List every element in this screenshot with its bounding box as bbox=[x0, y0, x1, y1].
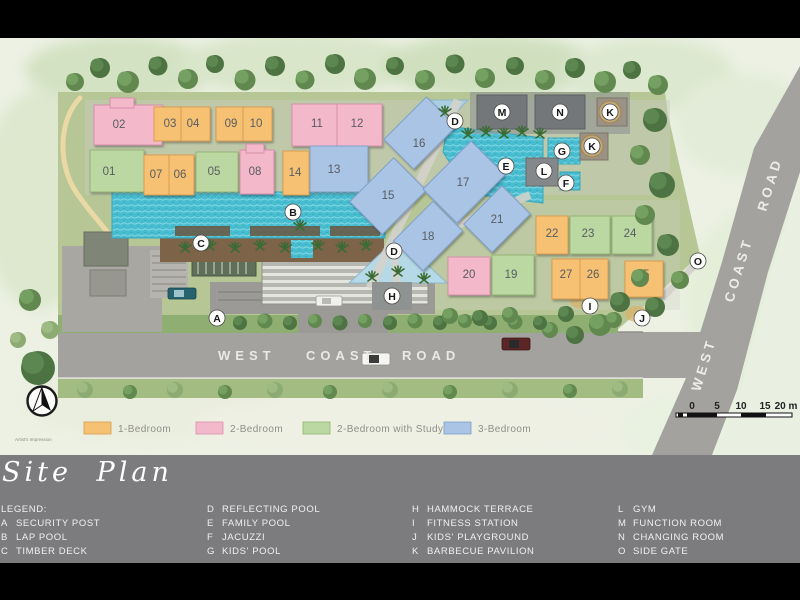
svg-text:2-Bedroom: 2-Bedroom bbox=[230, 424, 283, 435]
marker-gym: L bbox=[536, 163, 552, 179]
svg-text:11: 11 bbox=[311, 118, 323, 130]
svg-text:12: 12 bbox=[351, 118, 364, 130]
legend-item: KBARBECUE PAVILION bbox=[412, 545, 535, 559]
legend-item: ASECURITY POST bbox=[1, 517, 100, 531]
marker-function-room: M bbox=[494, 104, 510, 120]
svg-text:03: 03 bbox=[164, 118, 177, 130]
building-11-12 bbox=[292, 104, 382, 146]
svg-text:3-Bedroom: 3-Bedroom bbox=[478, 424, 531, 435]
legend-item: BLAP POOL bbox=[1, 531, 100, 545]
svg-text:16: 16 bbox=[413, 138, 426, 150]
svg-text:09: 09 bbox=[225, 118, 238, 130]
svg-text:23: 23 bbox=[582, 228, 595, 240]
marker-kids-playground: J bbox=[634, 310, 650, 326]
svg-text:D: D bbox=[390, 246, 398, 258]
site-plan-illustration: 01 02 03 04 05 06 07 08 09 10 11 12 13 1… bbox=[0, 38, 800, 455]
road-label-west: WEST bbox=[218, 348, 276, 363]
svg-text:10: 10 bbox=[735, 401, 747, 412]
svg-text:05: 05 bbox=[208, 166, 221, 178]
legend-item: EFAMILY POOL bbox=[207, 517, 320, 531]
marker-side-gate: O bbox=[690, 253, 706, 269]
svg-text:14: 14 bbox=[289, 167, 302, 179]
marker-reflecting-pool-lower: D bbox=[386, 243, 402, 259]
legend-column-1: LEGEND: ASECURITY POST BLAP POOL CTIMBER… bbox=[1, 503, 100, 559]
svg-text:D: D bbox=[451, 116, 459, 128]
legend-item: NCHANGING ROOM bbox=[618, 531, 724, 545]
legend-item: FJACUZZI bbox=[207, 531, 320, 545]
legend-item: OSIDE GATE bbox=[618, 545, 724, 559]
building-03-04 bbox=[154, 107, 210, 141]
svg-text:19: 19 bbox=[505, 269, 518, 281]
svg-text:F: F bbox=[563, 178, 570, 190]
info-panel: Site Plan LEGEND: ASECURITY POST BLAP PO… bbox=[0, 455, 800, 563]
svg-text:5: 5 bbox=[714, 401, 720, 412]
legend-swatch-2br-study bbox=[303, 422, 330, 434]
north-arrow-icon bbox=[28, 387, 57, 416]
marker-timber-deck: C bbox=[193, 235, 209, 251]
svg-text:A: A bbox=[213, 313, 221, 325]
svg-text:G: G bbox=[558, 146, 566, 158]
svg-text:08: 08 bbox=[249, 166, 262, 178]
marker-lap-pool: B bbox=[285, 204, 301, 220]
car bbox=[316, 296, 342, 306]
svg-text:10: 10 bbox=[250, 118, 263, 130]
svg-text:J: J bbox=[639, 313, 645, 325]
svg-text:K: K bbox=[606, 107, 614, 119]
svg-text:B: B bbox=[289, 207, 297, 219]
svg-text:L: L bbox=[541, 166, 548, 178]
legend-item: GKIDS' POOL bbox=[207, 545, 320, 559]
svg-text:26: 26 bbox=[587, 269, 600, 281]
svg-text:18: 18 bbox=[422, 231, 435, 243]
site-plan-map: 01 02 03 04 05 06 07 08 09 10 11 12 13 1… bbox=[0, 38, 800, 455]
page-title: Site Plan bbox=[2, 457, 173, 488]
marker-jacuzzi: F bbox=[558, 175, 574, 191]
letterbox-bottom bbox=[0, 563, 800, 600]
svg-text:2-Bedroom with Study: 2-Bedroom with Study bbox=[337, 424, 443, 435]
marker-family-pool: E bbox=[498, 158, 514, 174]
svg-text:0: 0 bbox=[689, 401, 695, 412]
svg-text:27: 27 bbox=[560, 269, 573, 281]
svg-text:21: 21 bbox=[491, 214, 504, 226]
building-01 bbox=[90, 150, 144, 192]
legend-item: MFUNCTION ROOM bbox=[618, 517, 724, 531]
svg-text:22: 22 bbox=[546, 228, 559, 240]
car bbox=[502, 338, 530, 350]
legend-item: LGYM bbox=[618, 503, 724, 517]
water-cascade bbox=[291, 240, 313, 258]
unit-type-legend: 1-Bedroom 2-Bedroom 2-Bedroom with Study… bbox=[84, 422, 531, 435]
legend-swatch-1br bbox=[84, 422, 111, 434]
screenshot-root: 01 02 03 04 05 06 07 08 09 10 11 12 13 1… bbox=[0, 0, 800, 600]
letterbox-top bbox=[0, 0, 800, 38]
roadside-planting-lower bbox=[58, 379, 643, 398]
svg-text:N: N bbox=[556, 107, 564, 119]
marker-security-post: A bbox=[209, 310, 225, 326]
legend-item: CTIMBER DECK bbox=[1, 545, 100, 559]
svg-text:20: 20 bbox=[463, 269, 476, 281]
marker-kids-pool: G bbox=[554, 143, 570, 159]
marker-reflecting-pool-upper: D bbox=[447, 113, 463, 129]
svg-text:K: K bbox=[588, 141, 596, 153]
marker-hammock-terrace: H bbox=[384, 288, 400, 304]
road-label-coast: COAST bbox=[306, 348, 377, 363]
svg-text:15: 15 bbox=[382, 190, 395, 202]
svg-text:1-Bedroom: 1-Bedroom bbox=[118, 424, 171, 435]
svg-text:E: E bbox=[502, 161, 509, 173]
marker-barbecue-pavilion-2: K bbox=[584, 138, 600, 154]
building-02 bbox=[94, 98, 162, 145]
svg-text:I: I bbox=[589, 301, 592, 313]
legend-swatch-3br bbox=[444, 422, 471, 434]
artists-impression-note: Artist's Impression bbox=[15, 437, 52, 442]
legend-swatch-2br bbox=[196, 422, 223, 434]
legend-item: DREFLECTING POOL bbox=[207, 503, 320, 517]
legend-column-3: HHAMMOCK TERRACE IFITNESS STATION JKIDS'… bbox=[412, 503, 535, 559]
legend-item: JKIDS' PLAYGROUND bbox=[412, 531, 535, 545]
scale-bar: 0 5 10 15 20 m bbox=[676, 401, 798, 417]
svg-text:13: 13 bbox=[328, 164, 341, 176]
svg-text:07: 07 bbox=[150, 169, 163, 181]
svg-text:04: 04 bbox=[187, 118, 200, 130]
svg-text:M: M bbox=[498, 107, 507, 119]
svg-text:C: C bbox=[197, 238, 205, 250]
legend-item: HHAMMOCK TERRACE bbox=[412, 503, 535, 517]
svg-text:24: 24 bbox=[624, 228, 637, 240]
legend-item: IFITNESS STATION bbox=[412, 517, 535, 531]
svg-text:01: 01 bbox=[103, 166, 116, 178]
legend-column-2: DREFLECTING POOL EFAMILY POOL FJACUZZI G… bbox=[207, 503, 320, 559]
svg-text:02: 02 bbox=[113, 119, 126, 131]
svg-text:O: O bbox=[694, 256, 702, 268]
marker-changing-room: N bbox=[552, 104, 568, 120]
svg-text:20 m: 20 m bbox=[775, 401, 798, 412]
marker-fitness-station: I bbox=[582, 298, 598, 314]
svg-text:06: 06 bbox=[174, 169, 187, 181]
legend-heading: LEGEND: bbox=[1, 503, 100, 517]
road-label-road: ROAD bbox=[402, 348, 460, 363]
svg-text:H: H bbox=[388, 291, 396, 303]
svg-text:15: 15 bbox=[759, 401, 771, 412]
svg-text:17: 17 bbox=[457, 177, 470, 189]
marker-barbecue-pavilion-1: K bbox=[602, 104, 618, 120]
car bbox=[168, 288, 196, 299]
legend-column-4: LGYM MFUNCTION ROOM NCHANGING ROOM OSIDE… bbox=[618, 503, 724, 559]
